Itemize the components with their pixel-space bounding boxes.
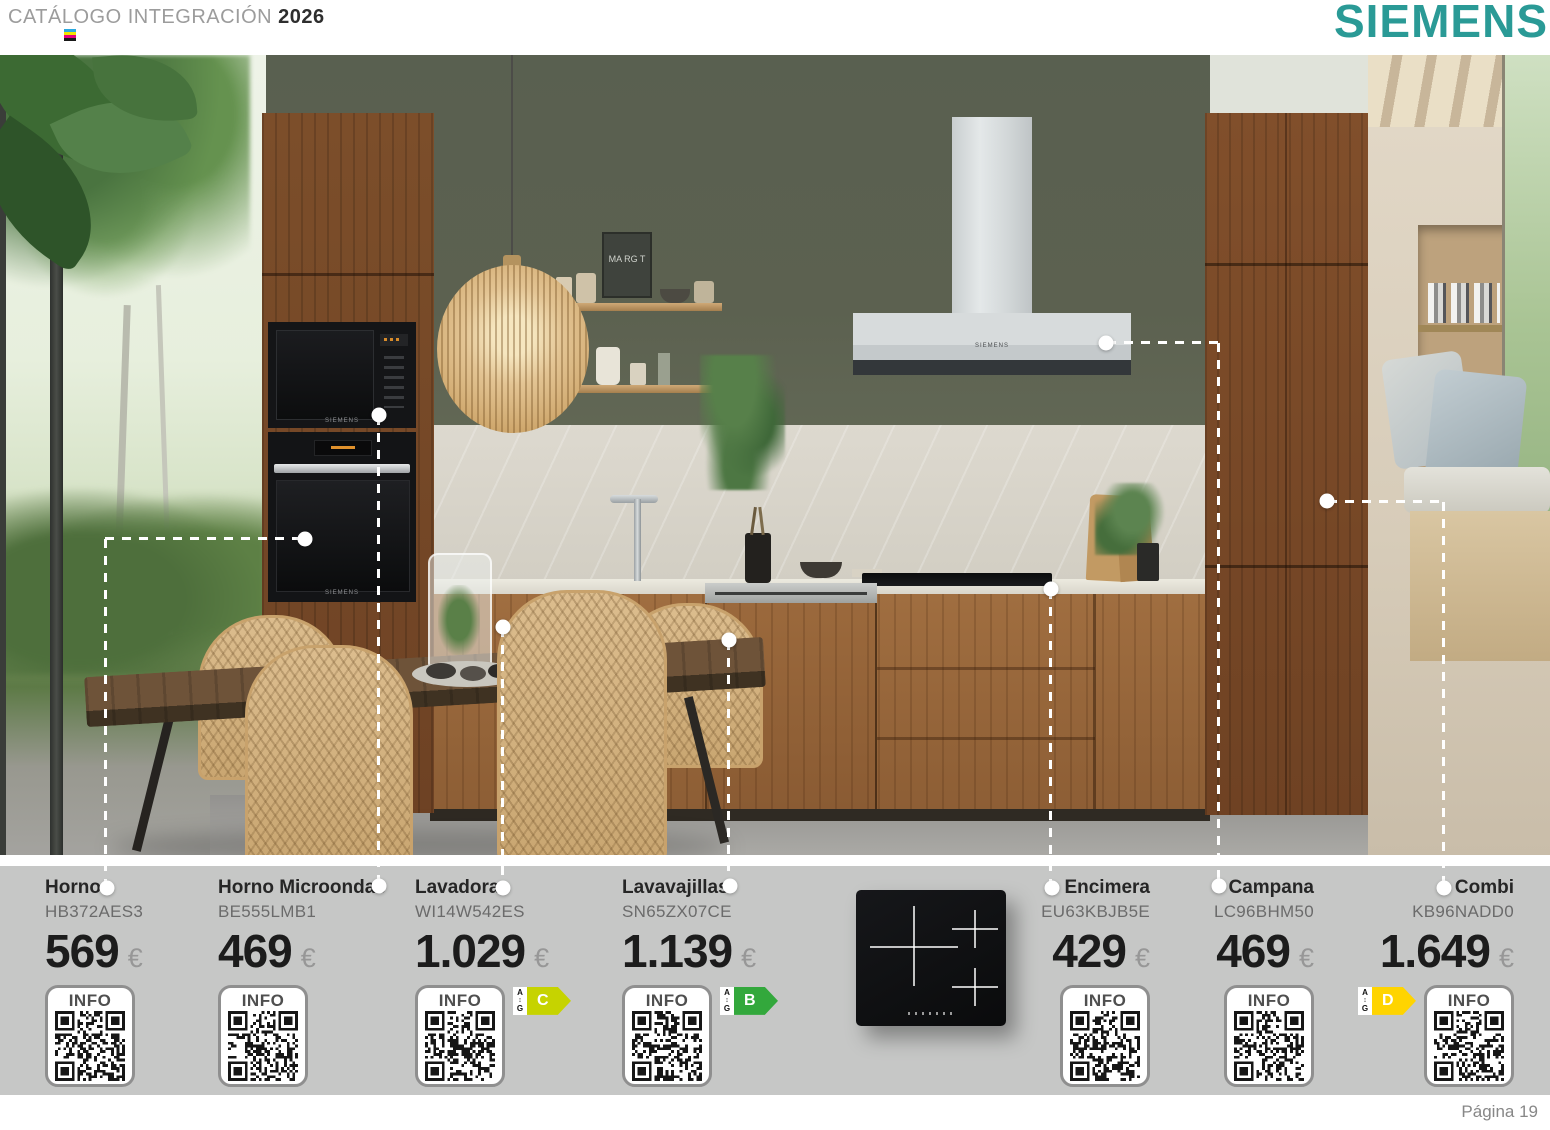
product-ref: KB96NADD0: [1352, 900, 1514, 923]
info-label: INFO: [221, 991, 305, 1011]
info-label: INFO: [625, 991, 709, 1011]
product-card-combi: Combi KB96NADD0 1.649€ A↕G D INFO: [1352, 876, 1514, 1087]
dining-chair: [497, 590, 667, 855]
detail: A: [517, 989, 523, 997]
dining-chair: [245, 645, 413, 855]
stones: [460, 666, 486, 681]
info-label: INFO: [1063, 991, 1147, 1011]
appliance-brand: SIEMENS: [853, 343, 1131, 349]
info-qr-button[interactable]: INFO: [622, 985, 712, 1087]
counter-vase: [1137, 543, 1159, 581]
qr-code: [425, 1011, 495, 1081]
currency-symbol: €: [301, 943, 316, 974]
microwave-controls: [384, 356, 404, 408]
product-name: Encimera: [1028, 876, 1150, 900]
product-price: 1.029: [415, 928, 525, 975]
detail: [64, 38, 76, 41]
oven-handle: [274, 464, 410, 473]
currency-symbol: €: [741, 943, 756, 974]
microwave-display: [380, 334, 408, 346]
door-seam: [1285, 113, 1287, 815]
currency-symbol: €: [128, 943, 143, 974]
hood-duct: [952, 117, 1032, 313]
hob-controls: [908, 1012, 954, 1015]
page-number: Página 19: [1461, 1102, 1538, 1122]
product-ref: SN65ZX07CE: [622, 900, 817, 923]
energy-letter: C: [527, 987, 571, 1015]
detail: A: [724, 989, 730, 997]
product-ref: HB372AES3: [45, 900, 220, 923]
catalog-title-text: CATÁLOGO INTEGRACIÓN: [8, 6, 272, 28]
info-qr-button[interactable]: INFO: [218, 985, 308, 1087]
shelf-item: [596, 347, 620, 385]
carafe-greens: [438, 585, 480, 655]
qr-code: [1070, 1011, 1140, 1081]
currency-symbol: €: [534, 943, 549, 974]
detail: A: [1362, 989, 1368, 997]
energy-label-b: A↕G B: [720, 987, 778, 1015]
window-seat: [1404, 467, 1550, 513]
product-name: Combi: [1352, 876, 1514, 900]
oven-image: SIEMENS: [268, 432, 416, 602]
info-label: INFO: [418, 991, 502, 1011]
product-ref: BE555LMB1: [218, 900, 403, 923]
product-card-campana: Campana LC96BHM50 469€ INFO: [1192, 876, 1314, 1087]
door-seam: [1093, 594, 1096, 809]
info-qr-button[interactable]: INFO: [45, 985, 135, 1087]
cooktop-image: [862, 573, 1052, 586]
siemens-logo: SIEMENS: [1334, 0, 1548, 48]
energy-scale: A↕G: [1358, 987, 1372, 1015]
shelf-item: [658, 353, 670, 385]
product-price: 1.139: [622, 928, 732, 975]
print-registration-mark: [64, 29, 76, 41]
oven-door: [276, 480, 410, 592]
tall-cabinet-right: [1205, 113, 1368, 815]
product-ref: LC96BHM50: [1192, 900, 1314, 923]
detail: G: [724, 1005, 730, 1013]
currency-symbol: €: [1499, 943, 1514, 974]
energy-letter: D: [1372, 987, 1416, 1015]
shelf-board: [1418, 325, 1514, 332]
energy-scale: A↕G: [513, 987, 527, 1015]
microwave-image: SIEMENS: [268, 322, 416, 428]
product-card-lavavajillas: Lavavajillas SN65ZX07CE 1.139€ INFO A↕G …: [622, 876, 817, 1087]
energy-scale: A↕G: [720, 987, 734, 1015]
product-price: 469: [218, 928, 292, 975]
currency-symbol: €: [1135, 943, 1150, 974]
stones: [426, 663, 456, 679]
pendant-lamp-cord: [511, 55, 513, 263]
qr-code: [1234, 1011, 1304, 1081]
catalog-title: CATÁLOGO INTEGRACIÓN2026: [8, 6, 325, 29]
detail: [974, 968, 976, 1006]
energy-letter: B: [734, 987, 778, 1015]
product-name: Campana: [1192, 876, 1314, 900]
product-strip: Horno HB372AES3 569€ INFO Horno Microond…: [0, 866, 1550, 1095]
product-card-lavadora: Lavadora WI14W542ES 1.029€ INFO A↕G C: [415, 876, 610, 1087]
door-seam: [262, 273, 434, 276]
product-card-encimera: Encimera EU63KBJB5E 429€ INFO: [1028, 876, 1150, 1087]
info-label: INFO: [48, 991, 132, 1011]
shelf-item: [694, 281, 714, 303]
books-row: [1428, 283, 1500, 323]
qr-code: [228, 1011, 298, 1081]
qr-code: [1434, 1011, 1504, 1081]
dishwasher-panel: [705, 583, 877, 603]
info-qr-button[interactable]: INFO: [415, 985, 505, 1087]
product-price: 569: [45, 928, 119, 975]
water-carafe: [428, 553, 492, 675]
product-card-horno: Horno HB372AES3 569€ INFO: [45, 876, 220, 1087]
hood-image: SIEMENS: [853, 313, 1131, 375]
pendant-lamp-shade: [437, 265, 589, 433]
product-price: 1.649: [1380, 928, 1490, 975]
info-label: INFO: [1427, 991, 1511, 1011]
product-name: Lavavajillas: [622, 876, 817, 900]
product-ref: WI14W542ES: [415, 900, 610, 923]
reading-nook: [1368, 55, 1550, 855]
oven-display: [314, 440, 372, 456]
bench-base: [1410, 511, 1550, 661]
kitchen-photo: SIEMENS SIEMENS MA RG T SIEMENS: [0, 55, 1550, 855]
detail: [437, 265, 589, 433]
detail: G: [1362, 1005, 1368, 1013]
detail: [913, 906, 915, 986]
drawer-seam: [877, 667, 1095, 670]
product-price: 429: [1052, 928, 1126, 975]
decor-letterboard: MA RG T: [602, 232, 652, 298]
product-image-encimera: [826, 872, 1036, 1077]
info-label: INFO: [1227, 991, 1311, 1011]
info-qr-button[interactable]: INFO: [1224, 985, 1314, 1087]
detail: [974, 910, 976, 948]
detail: [715, 592, 867, 595]
appliance-brand: SIEMENS: [268, 418, 416, 424]
product-name: Horno Microondas: [218, 876, 403, 900]
detail: G: [517, 1005, 523, 1013]
qr-code: [55, 1011, 125, 1081]
letterboard-text: MA RG T: [609, 254, 646, 264]
drawer-seam: [877, 737, 1095, 740]
energy-label-d: A↕G D: [1358, 987, 1416, 1015]
product-ref: EU63KBJB5E: [1028, 900, 1150, 923]
qr-code: [632, 1011, 702, 1081]
shelf-item: [576, 273, 596, 303]
catalog-year: 2026: [278, 6, 325, 28]
counter-decor: [745, 533, 771, 583]
display-digits: [331, 446, 355, 449]
shelf-item: [630, 363, 646, 385]
wall-plant: [700, 355, 785, 490]
product-card-horno-microondas: Horno Microondas BE555LMB1 469€ INFO: [218, 876, 403, 1087]
product-price: 469: [1216, 928, 1290, 975]
catalog-page: CATÁLOGO INTEGRACIÓN2026 SIEMENS: [0, 0, 1550, 1130]
product-name: Horno: [45, 876, 220, 900]
energy-label-c: A↕G C: [513, 987, 571, 1015]
info-qr-button[interactable]: INFO: [1424, 985, 1514, 1087]
info-qr-button[interactable]: INFO: [1060, 985, 1150, 1087]
induction-hob-image: [856, 890, 1006, 1026]
currency-symbol: €: [1299, 943, 1314, 974]
display-digits: [384, 338, 402, 341]
product-name: Lavadora: [415, 876, 610, 900]
appliance-brand: SIEMENS: [268, 590, 416, 596]
faucet: [634, 499, 641, 581]
microwave-door: [276, 330, 374, 420]
